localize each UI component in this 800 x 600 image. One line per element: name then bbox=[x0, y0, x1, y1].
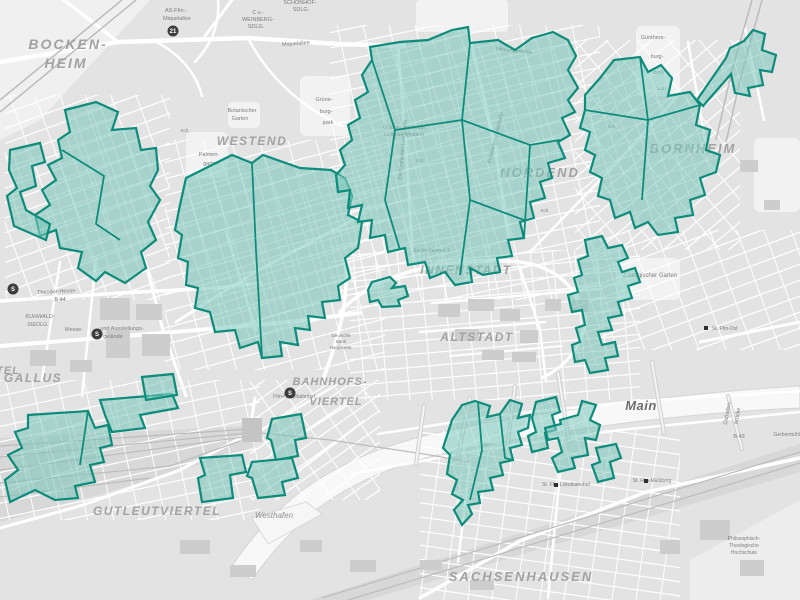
map-small-label: und Ausstellungs- bbox=[100, 326, 144, 332]
road-badge: S bbox=[92, 329, 103, 340]
map-small-label: Theologische bbox=[729, 543, 759, 549]
map-small-label: Gerbermühlstr. bbox=[773, 432, 800, 438]
map-small-label: C.v.- bbox=[252, 10, 263, 16]
map-small-label: Sch. bbox=[540, 208, 549, 213]
map-small-label: AS-Ffm.- bbox=[165, 8, 187, 14]
map-small-label: SCHÖNHOF- bbox=[283, 0, 316, 6]
map-small-label: park bbox=[323, 120, 334, 126]
district-label: VIERTEL bbox=[0, 365, 20, 377]
map-small-label: Sch. bbox=[180, 128, 189, 133]
map-small-label: Hochschule bbox=[731, 550, 757, 556]
district-label: VIERTEL bbox=[309, 396, 362, 408]
map-small-label: Messe- bbox=[65, 327, 83, 333]
svg-text:S: S bbox=[11, 287, 15, 293]
district-label: BOCKEN- bbox=[28, 36, 107, 52]
map-small-label: Palmen- bbox=[199, 152, 220, 158]
map-small-label: SDLG. bbox=[248, 24, 265, 30]
road-badge: S bbox=[285, 388, 296, 399]
station-marker bbox=[704, 326, 708, 330]
map-small-label: Günthers- bbox=[641, 35, 666, 41]
svg-text:S: S bbox=[288, 391, 292, 397]
map-small-label: Garten bbox=[232, 116, 249, 122]
map-small-label: WEINBERG- bbox=[242, 17, 274, 23]
map-small-label: Miquelallee bbox=[163, 16, 191, 22]
map-small-label: B 43 bbox=[733, 434, 744, 440]
map-small-label: gelände bbox=[103, 334, 123, 340]
map-small-label: Grüne- bbox=[315, 97, 332, 103]
zone-gallus-d[interactable] bbox=[142, 374, 177, 400]
map-small-label: Botanischer bbox=[227, 108, 256, 114]
frankfurt-district-map[interactable]: SCHÖNHOF-SDLG.C.v.-WEINBERG-SDLG.AS-Ffm.… bbox=[0, 0, 800, 600]
map-small-label: B 44 bbox=[54, 297, 65, 303]
map-small-label: St. Ffm-Ost bbox=[712, 326, 738, 332]
district-label: HEIM bbox=[45, 55, 88, 71]
map-small-label: St. Ffm-Lokalbahnhof bbox=[542, 482, 590, 488]
district-label: GUTLEUTVIERTEL bbox=[93, 504, 221, 518]
map-small-label: SIEDLG. bbox=[27, 322, 49, 328]
district-label: SACHSENHAUSEN bbox=[449, 569, 593, 584]
map-small-label: burg- bbox=[320, 109, 333, 115]
map-small-label: Bank bbox=[336, 339, 347, 344]
road-badge: S bbox=[8, 284, 19, 295]
map-small-label: KUHWALD- bbox=[25, 314, 54, 320]
district-label: WESTEND bbox=[217, 134, 288, 148]
map-small-label: SDLG. bbox=[293, 7, 310, 13]
map-small-label: St. Ffm-Mühlberg bbox=[633, 478, 672, 484]
svg-text:21: 21 bbox=[170, 29, 177, 35]
svg-text:S: S bbox=[95, 332, 99, 338]
map-canvas[interactable]: SCHÖNHOF-SDLG.C.v.-WEINBERG-SDLG.AS-Ffm.… bbox=[0, 0, 800, 600]
district-label: Main bbox=[625, 398, 657, 413]
map-small-label: Westhafen bbox=[255, 511, 294, 520]
road-badge: 21 bbox=[168, 26, 179, 37]
station-marker bbox=[554, 483, 558, 487]
station-marker bbox=[644, 479, 648, 483]
map-small-label: Hauptverw. bbox=[330, 345, 353, 350]
map-small-label: Deutsche bbox=[331, 333, 351, 338]
map-small-label: burg- bbox=[651, 54, 664, 60]
map-small-label: Philosophisch- bbox=[728, 536, 761, 542]
district-label: BAHNHOFS- bbox=[293, 376, 368, 388]
district-label: ALTSTADT bbox=[439, 330, 514, 344]
